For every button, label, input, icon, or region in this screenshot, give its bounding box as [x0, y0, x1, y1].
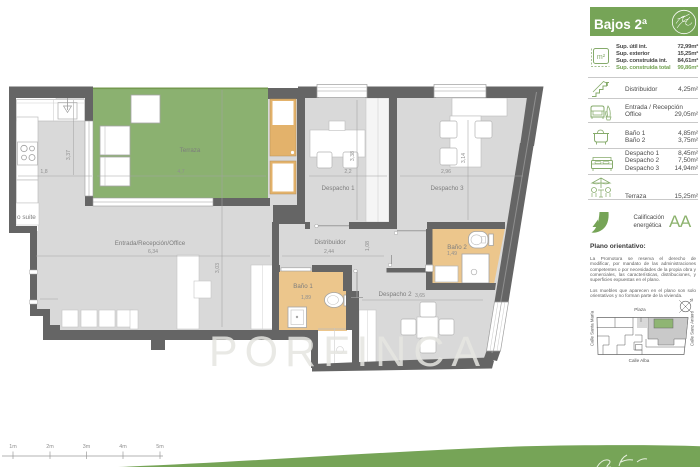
svg-text:1,8: 1,8	[40, 169, 47, 175]
svg-text:Entrada/Recepción/Office: Entrada/Recepción/Office	[115, 240, 186, 247]
svg-text:1m: 1m	[9, 444, 17, 450]
svg-text:Baño 2: Baño 2	[447, 244, 467, 251]
svg-text:1,89: 1,89	[301, 295, 311, 301]
svg-text:PORFINCA: PORFINCA	[209, 328, 487, 376]
svg-text:Despacho 2: Despacho 2	[378, 291, 412, 298]
svg-text:4m: 4m	[119, 444, 127, 450]
svg-text:1,08: 1,08	[365, 241, 371, 251]
svg-text:Despacho 3: Despacho 3	[430, 185, 464, 192]
svg-text:6,34: 6,34	[148, 249, 158, 255]
svg-text:2,2: 2,2	[344, 169, 351, 175]
svg-text:2,44: 2,44	[324, 249, 334, 255]
svg-text:2,96: 2,96	[441, 169, 451, 175]
svg-text:3,37: 3,37	[66, 150, 72, 160]
svg-text:Baño 1: Baño 1	[293, 283, 313, 290]
svg-text:2m: 2m	[46, 444, 54, 450]
svg-text:Distribuidor: Distribuidor	[314, 239, 345, 246]
svg-text:o suite: o suite	[17, 214, 36, 221]
svg-text:3,03: 3,03	[215, 263, 221, 273]
svg-text:4,7: 4,7	[177, 169, 184, 175]
svg-text:Terraza: Terraza	[180, 147, 201, 154]
svg-text:3m: 3m	[83, 444, 91, 450]
svg-text:m²: m²	[597, 54, 606, 61]
svg-text:1,49: 1,49	[447, 251, 457, 257]
svg-text:3,14: 3,14	[461, 153, 467, 163]
svg-text:Despacho 1: Despacho 1	[321, 185, 355, 192]
svg-text:3,65: 3,65	[415, 293, 425, 299]
svg-text:3,38: 3,38	[350, 151, 356, 161]
svg-text:5m: 5m	[156, 444, 164, 450]
